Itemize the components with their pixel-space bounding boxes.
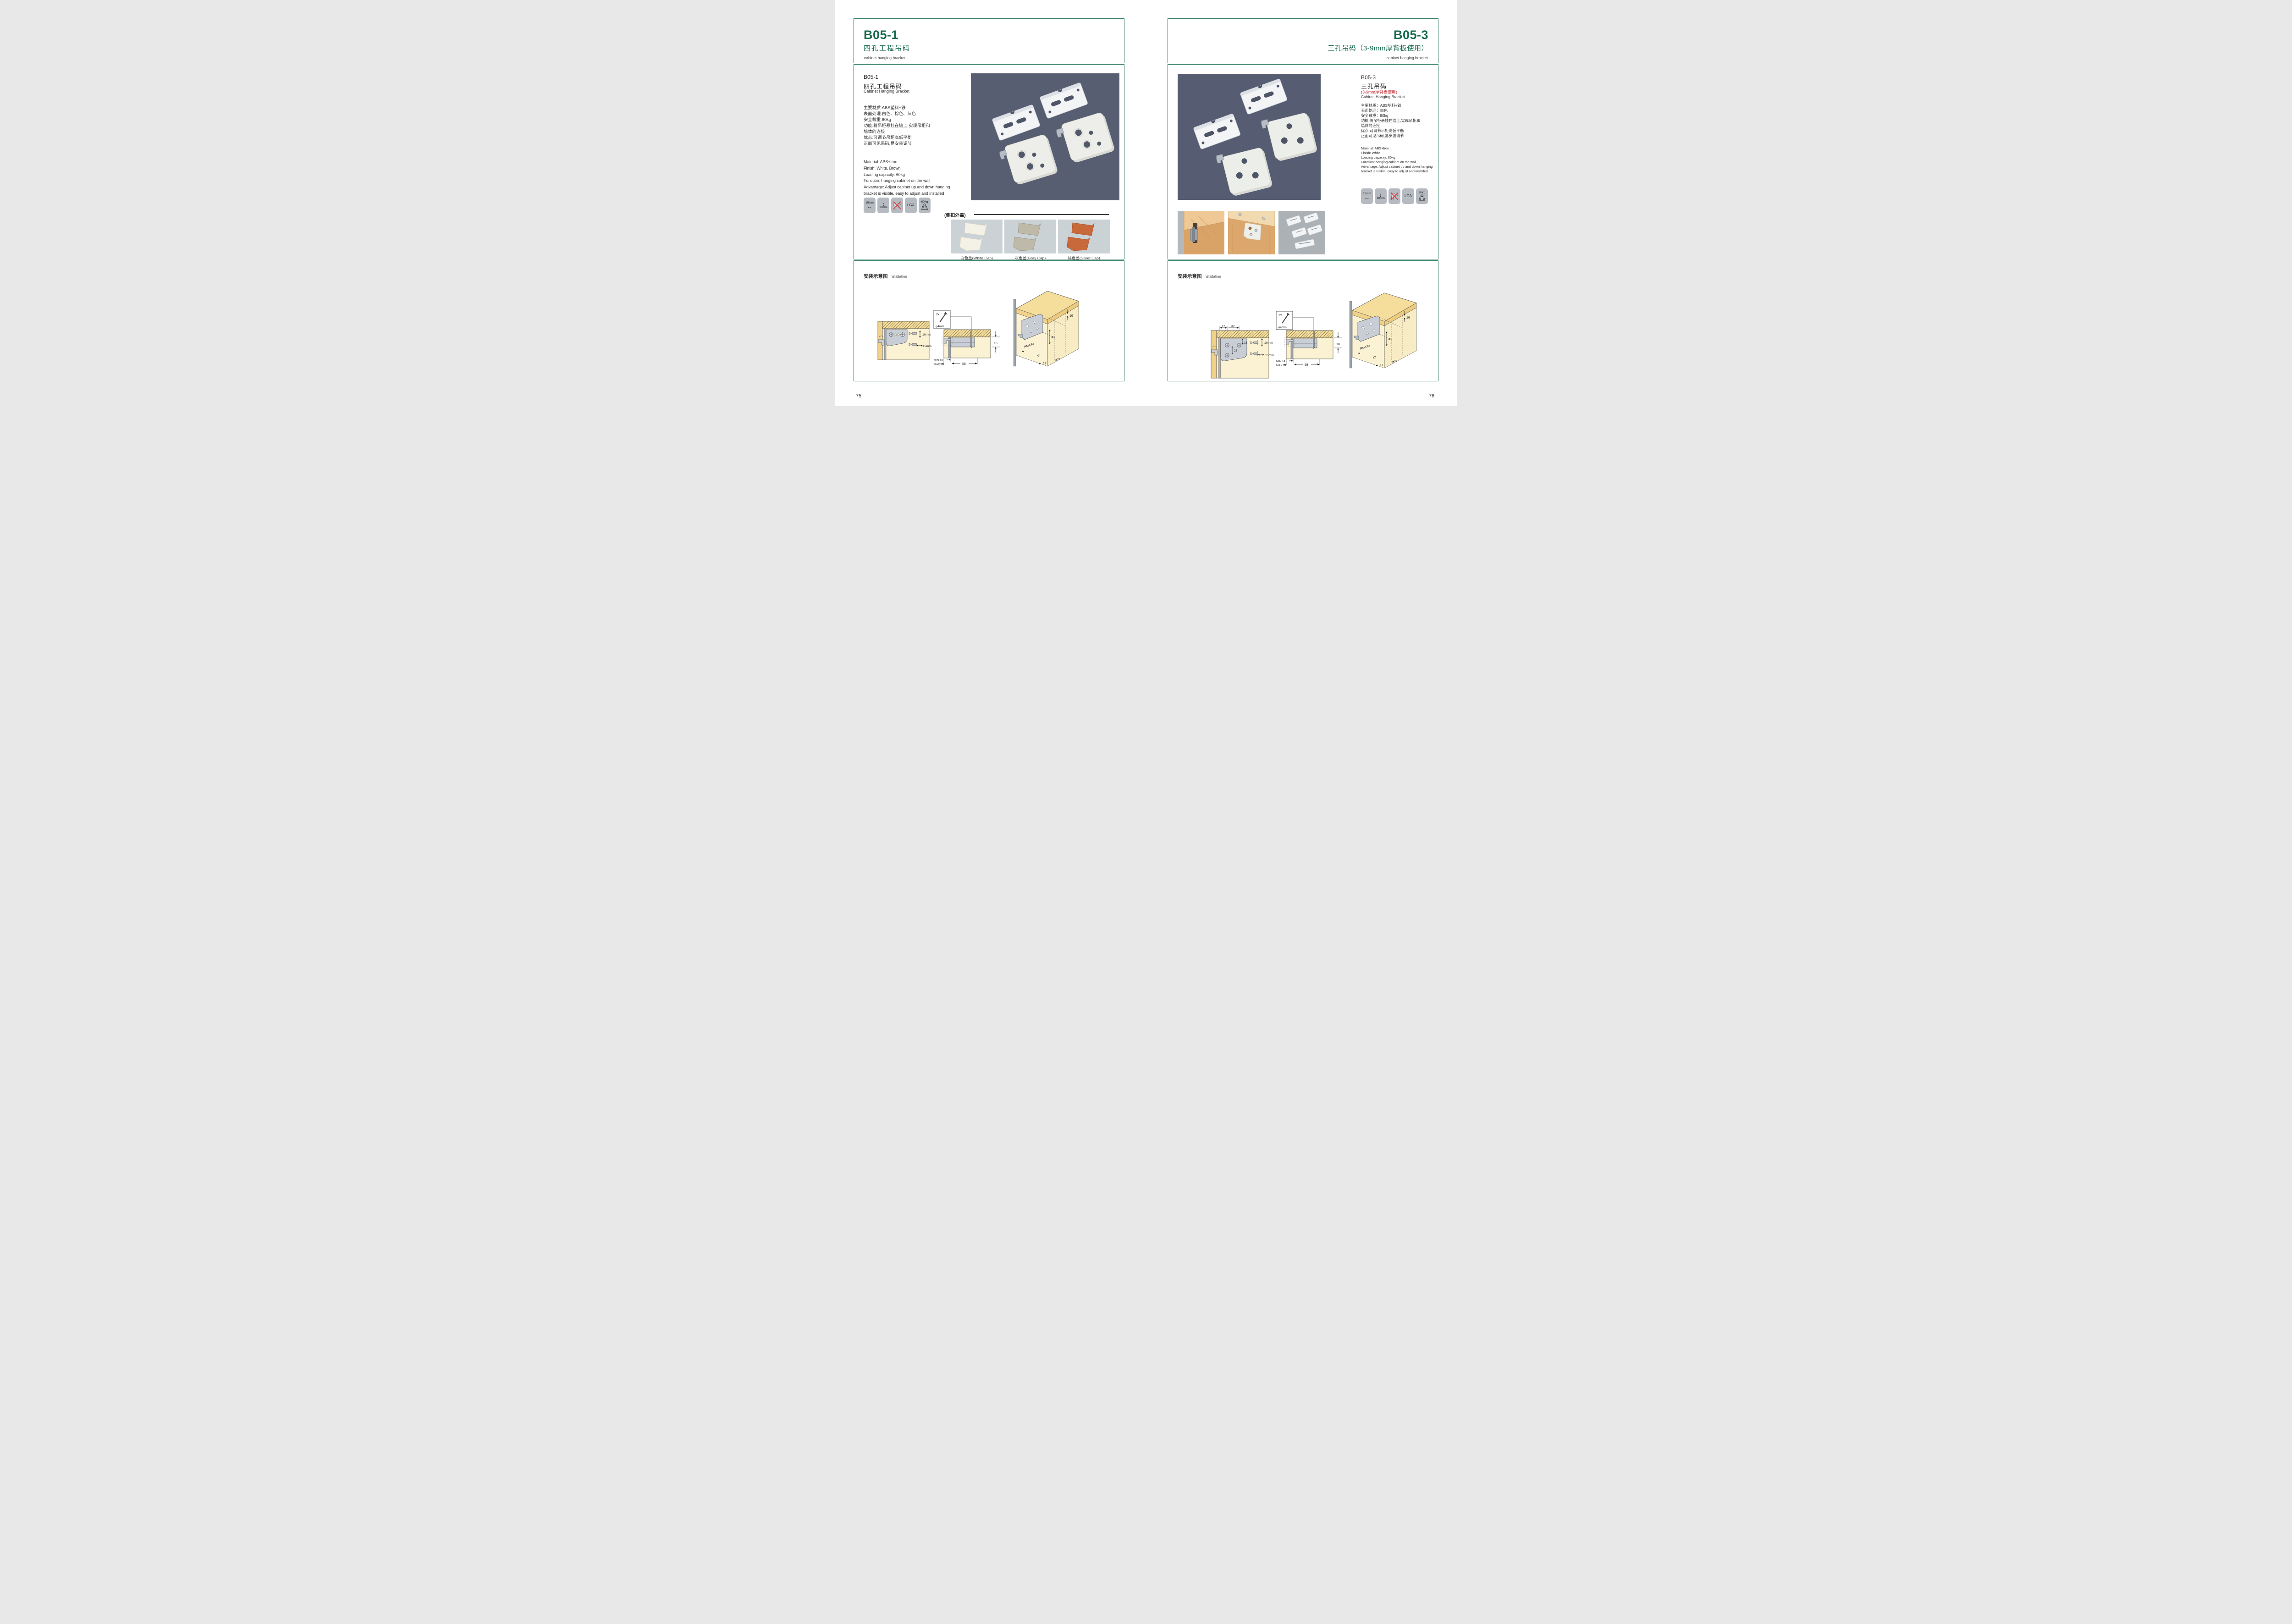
right-header-title: 三孔吊码（3-9mm厚背板使用） [1328,45,1428,52]
right-header-code: B05-3 [1394,29,1428,41]
spec-line: 表面处理:白色、棕色、灰色 [864,111,930,117]
screw-dia-label: φ4mm [936,325,944,328]
dim-label: 58 [962,363,966,365]
spec-line: 安全载重：80kg [1361,113,1420,118]
install-title-cn: 安装示意图 [1178,274,1202,279]
dim-label: 42 [1388,337,1392,341]
spec-line: Function: hanging cabinet on the wall [1361,160,1432,165]
left-product-box: B05-1 四孔工程吊码 Cabinet Hanging Bracket 主要材… [854,64,1124,259]
spec-line: 墙体的连接 [1361,123,1420,128]
panel-width-icon: 15mm↔ [1361,188,1373,204]
left-diagram-wall-section: 10mm 15mm [877,319,932,362]
icon-label: 60Kg [921,201,928,204]
icon-label: LGA [1405,194,1412,198]
no-drill-icon [1388,188,1400,204]
right-header-box: B05-3 三孔吊码（3-9mm厚背板使用） cabinet hanging b… [1168,18,1438,63]
spec-line: Material: ABS+Iron [864,159,950,165]
dim-label: 17 [1380,364,1383,367]
dim-label: 17 [1043,362,1047,365]
dim-label: MIN.10 [934,359,943,362]
page-number-left: 75 [856,393,861,399]
spec-line: 优点:可调节吊柜高低平衡 [864,135,930,141]
caps-section-title: (侧扣外盖) [944,211,966,218]
spec-line: 安全载重:60kg [864,117,930,123]
catalog-spread: B05-1 四孔工程吊码 cabinet hanging bracket B05… [835,0,1457,406]
horizontal-arrow-icon: ↔ [1364,195,1370,200]
spec-line: 功能:将吊柜悬挂在墙上,实现吊柜和 [864,123,930,129]
spec-line: 表面处理：白色 [1361,108,1420,113]
dim-label: 18 [994,342,997,345]
dim-label: 16 [1244,341,1248,345]
page-number-right: 76 [1429,393,1434,399]
left-product-name-en: Cabinet Hanging Bracket [864,89,909,94]
white-cap-photo [951,220,1003,253]
caps-divider [974,214,1109,215]
left-header-box: B05-1 四孔工程吊码 cabinet hanging bracket [854,18,1124,63]
right-diagram-cabinet-section: 2x φ4mm 18 MIN.14 MAX.24 [1275,310,1343,366]
application-photo-hook [1178,211,1224,254]
left-product-code: B05-1 [864,74,878,80]
right-attribute-icons: 15mm↔ ↕10mm LGA 80Kg [1361,188,1428,204]
spec-line: Finish: White [1361,151,1432,155]
right-product-name-en: Cabinet Hanging Bracket [1361,94,1405,99]
icon-label: 80Kg [1419,192,1426,195]
screw-qty-label: 2x [1278,314,1282,317]
weight-icon [920,204,929,210]
dim-label: 10mm [1264,341,1273,345]
spec-line: bracket is visible, easy to adjust and i… [1361,169,1432,174]
dim-label: 32 [1057,358,1060,361]
weight-icon [1418,194,1426,201]
spec-line: Finish: White, Brown [864,165,950,172]
dim-label: 25 [1234,349,1238,352]
load-capacity-icon: 60Kg [919,198,931,213]
install-title-en: Installation [890,275,907,279]
spec-line: Advantage: Adjust cabinet up and down ha… [1361,165,1432,169]
right-product-box: B05-3 三孔吊码 (3-9mm厚背板使用) Cabinet Hanging … [1168,64,1438,259]
lga-icon: LGA [905,198,917,213]
spec-line: 优点:可调节吊柜高低平衡 [1361,128,1420,133]
right-install-box: 安装示意图Installation 17 32 [1168,260,1438,381]
dim-label: 17 [1222,325,1225,328]
right-diagram-3d-view: 16 42 RMAX4 18 17 32 [1346,288,1419,371]
spec-line: Function: hanging cabinet on the wall [864,178,950,184]
icon-label: 10mm [879,206,887,209]
lga-icon: LGA [1402,188,1414,204]
spec-line: 正面可见吊码,易安装调节 [864,141,930,147]
icon-label: LGA [907,204,915,208]
spec-line: Loading capacity: 80kg [1361,155,1432,160]
spec-line: 主要材质:ABS塑料+铁 [864,105,930,111]
dim-label: 16 [1069,314,1073,318]
application-photo-plates [1278,211,1325,254]
dim-label: 18 [1336,343,1340,346]
left-diagram-3d-view: 16 42 RMAX4 16 17 32 [1011,286,1080,369]
left-install-title: 安装示意图Installation [864,272,907,280]
spec-line: 正面可见吊码,易安装调节 [1361,133,1420,138]
no-drill-icon [891,198,903,213]
screw-qty-label: 2x [936,313,940,316]
dim-label: 58 [1305,363,1308,366]
left-header-code: B05-1 [864,29,898,41]
horizontal-arrow-icon: ↔ [867,204,872,209]
right-header-subtitle: cabinet hanging bracket [1387,56,1428,60]
left-attribute-icons: 15mm↔ ↕10mm LGA 60Kg [864,198,931,213]
dim-label: MIN.14 [1276,360,1286,363]
dim-label: 10mm [922,333,931,336]
left-header-title: 四孔工程吊码 [864,45,910,52]
spec-line: bracket is visible, easy to adjust and i… [864,191,950,197]
left-install-box: 安装示意图Installation [854,260,1124,381]
left-header-subtitle: cabinet hanging bracket [864,56,905,60]
spec-line: Loading capacity: 60kg [864,172,950,178]
spec-line: 墙体的连接 [864,129,930,135]
left-product-photo [971,73,1119,200]
panel-thickness-icon: ↕10mm [1375,188,1387,204]
left-specs-cn: 主要材质:ABS塑料+铁 表面处理:白色、棕色、灰色 安全载重:60kg 功能:… [864,105,930,147]
load-capacity-icon: 80Kg [1416,188,1428,204]
dim-label: 32 [1231,325,1235,328]
right-product-code: B05-3 [1361,74,1376,81]
dim-label: 15mm [923,345,931,348]
icon-label: 10mm [1377,197,1385,200]
install-title-cn: 安装示意图 [864,274,888,279]
gray-cap-photo [1004,220,1056,253]
right-diagram-wall-section: 17 32 16 25 10mm [1210,324,1275,380]
spec-line: 功能:将吊柜悬挂在墙上,实现吊柜和 [1361,118,1420,123]
dim-label: 15mm [1265,354,1274,357]
right-product-photo [1178,74,1321,200]
screw-dia-label: φ4mm [1278,326,1287,329]
dim-label: 42 [1052,335,1055,339]
left-specs-en: Material: ABS+Iron Finish: White, Brown … [864,159,950,197]
left-diagram-cabinet-section: 2x φ4mm 18 MIN.10 MAX.23 [933,309,1001,365]
right-specs-cn: 主要材质：ABS塑料+铁 表面处理：白色 安全载重：80kg 功能:将吊柜悬挂在… [1361,103,1420,138]
spec-line: Material: ABS+Iron [1361,146,1432,151]
right-install-title: 安装示意图Installation [1178,272,1221,280]
dim-label: 16 [1406,316,1410,319]
panel-width-icon: 15mm↔ [864,198,876,213]
spec-line: Advantage: Adjust cabinet up and down ha… [864,184,950,191]
silver-cap-photo [1058,220,1110,253]
application-photo-bracket [1228,211,1275,254]
spec-line: 主要材质：ABS塑料+铁 [1361,103,1420,108]
dim-label: 32 [1394,360,1397,363]
right-specs-en: Material: ABS+Iron Finish: White Loading… [1361,146,1432,174]
panel-thickness-icon: ↕10mm [877,198,889,213]
install-title-en: Installation [1204,275,1221,279]
